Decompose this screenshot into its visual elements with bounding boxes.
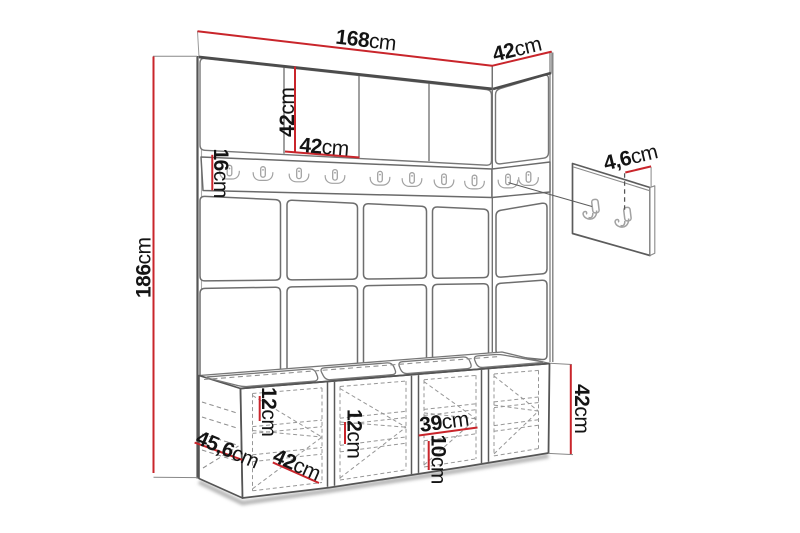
svg-text:12cm: 12cm — [257, 387, 280, 436]
svg-text:16cm: 16cm — [209, 149, 232, 198]
svg-text:12cm: 12cm — [343, 409, 366, 458]
svg-text:42cm: 42cm — [570, 384, 593, 433]
svg-text:42cm: 42cm — [276, 88, 299, 137]
svg-text:186cm: 186cm — [133, 237, 156, 298]
svg-text:42cm: 42cm — [299, 134, 350, 161]
svg-text:10cm: 10cm — [427, 435, 450, 484]
